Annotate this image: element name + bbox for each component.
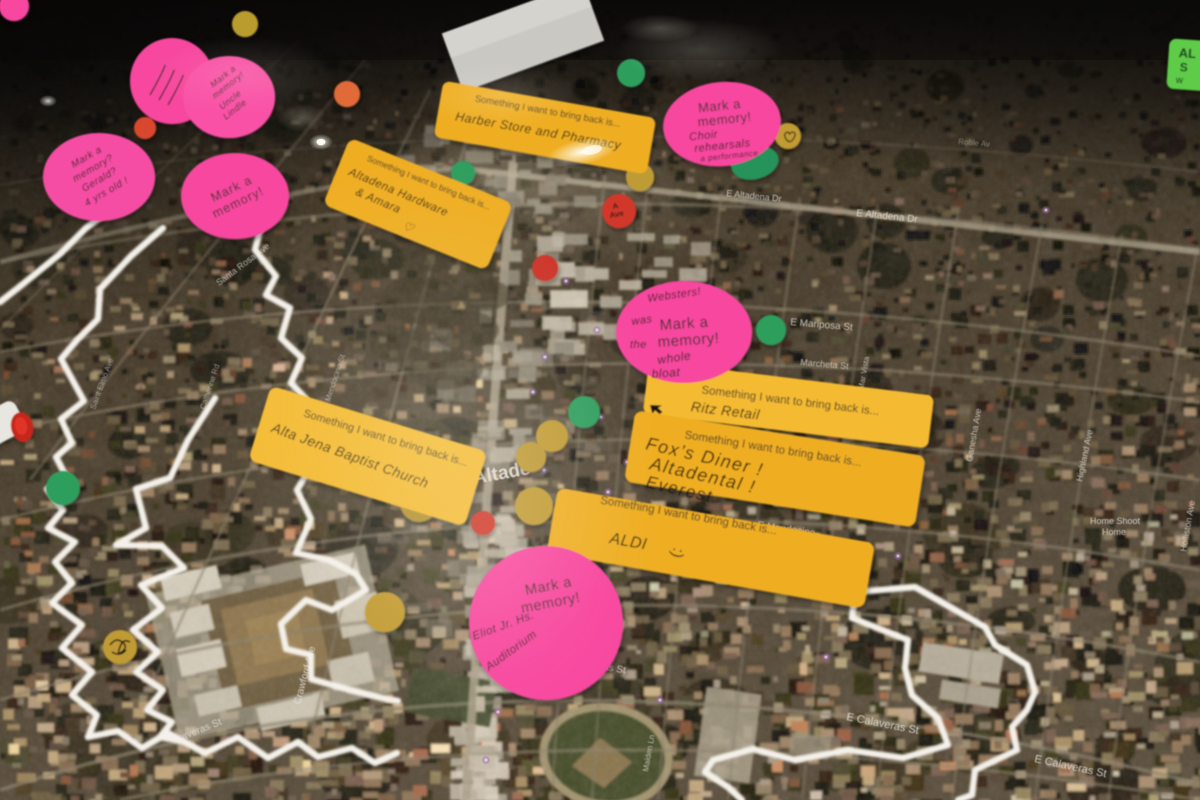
svg-text:w: w	[1174, 75, 1184, 87]
svg-text:S: S	[1179, 60, 1188, 75]
svg-text:Home: Home	[1102, 527, 1126, 537]
svg-text:Home Shoot: Home Shoot	[1090, 516, 1141, 526]
svg-text:AL: AL	[1178, 45, 1196, 61]
